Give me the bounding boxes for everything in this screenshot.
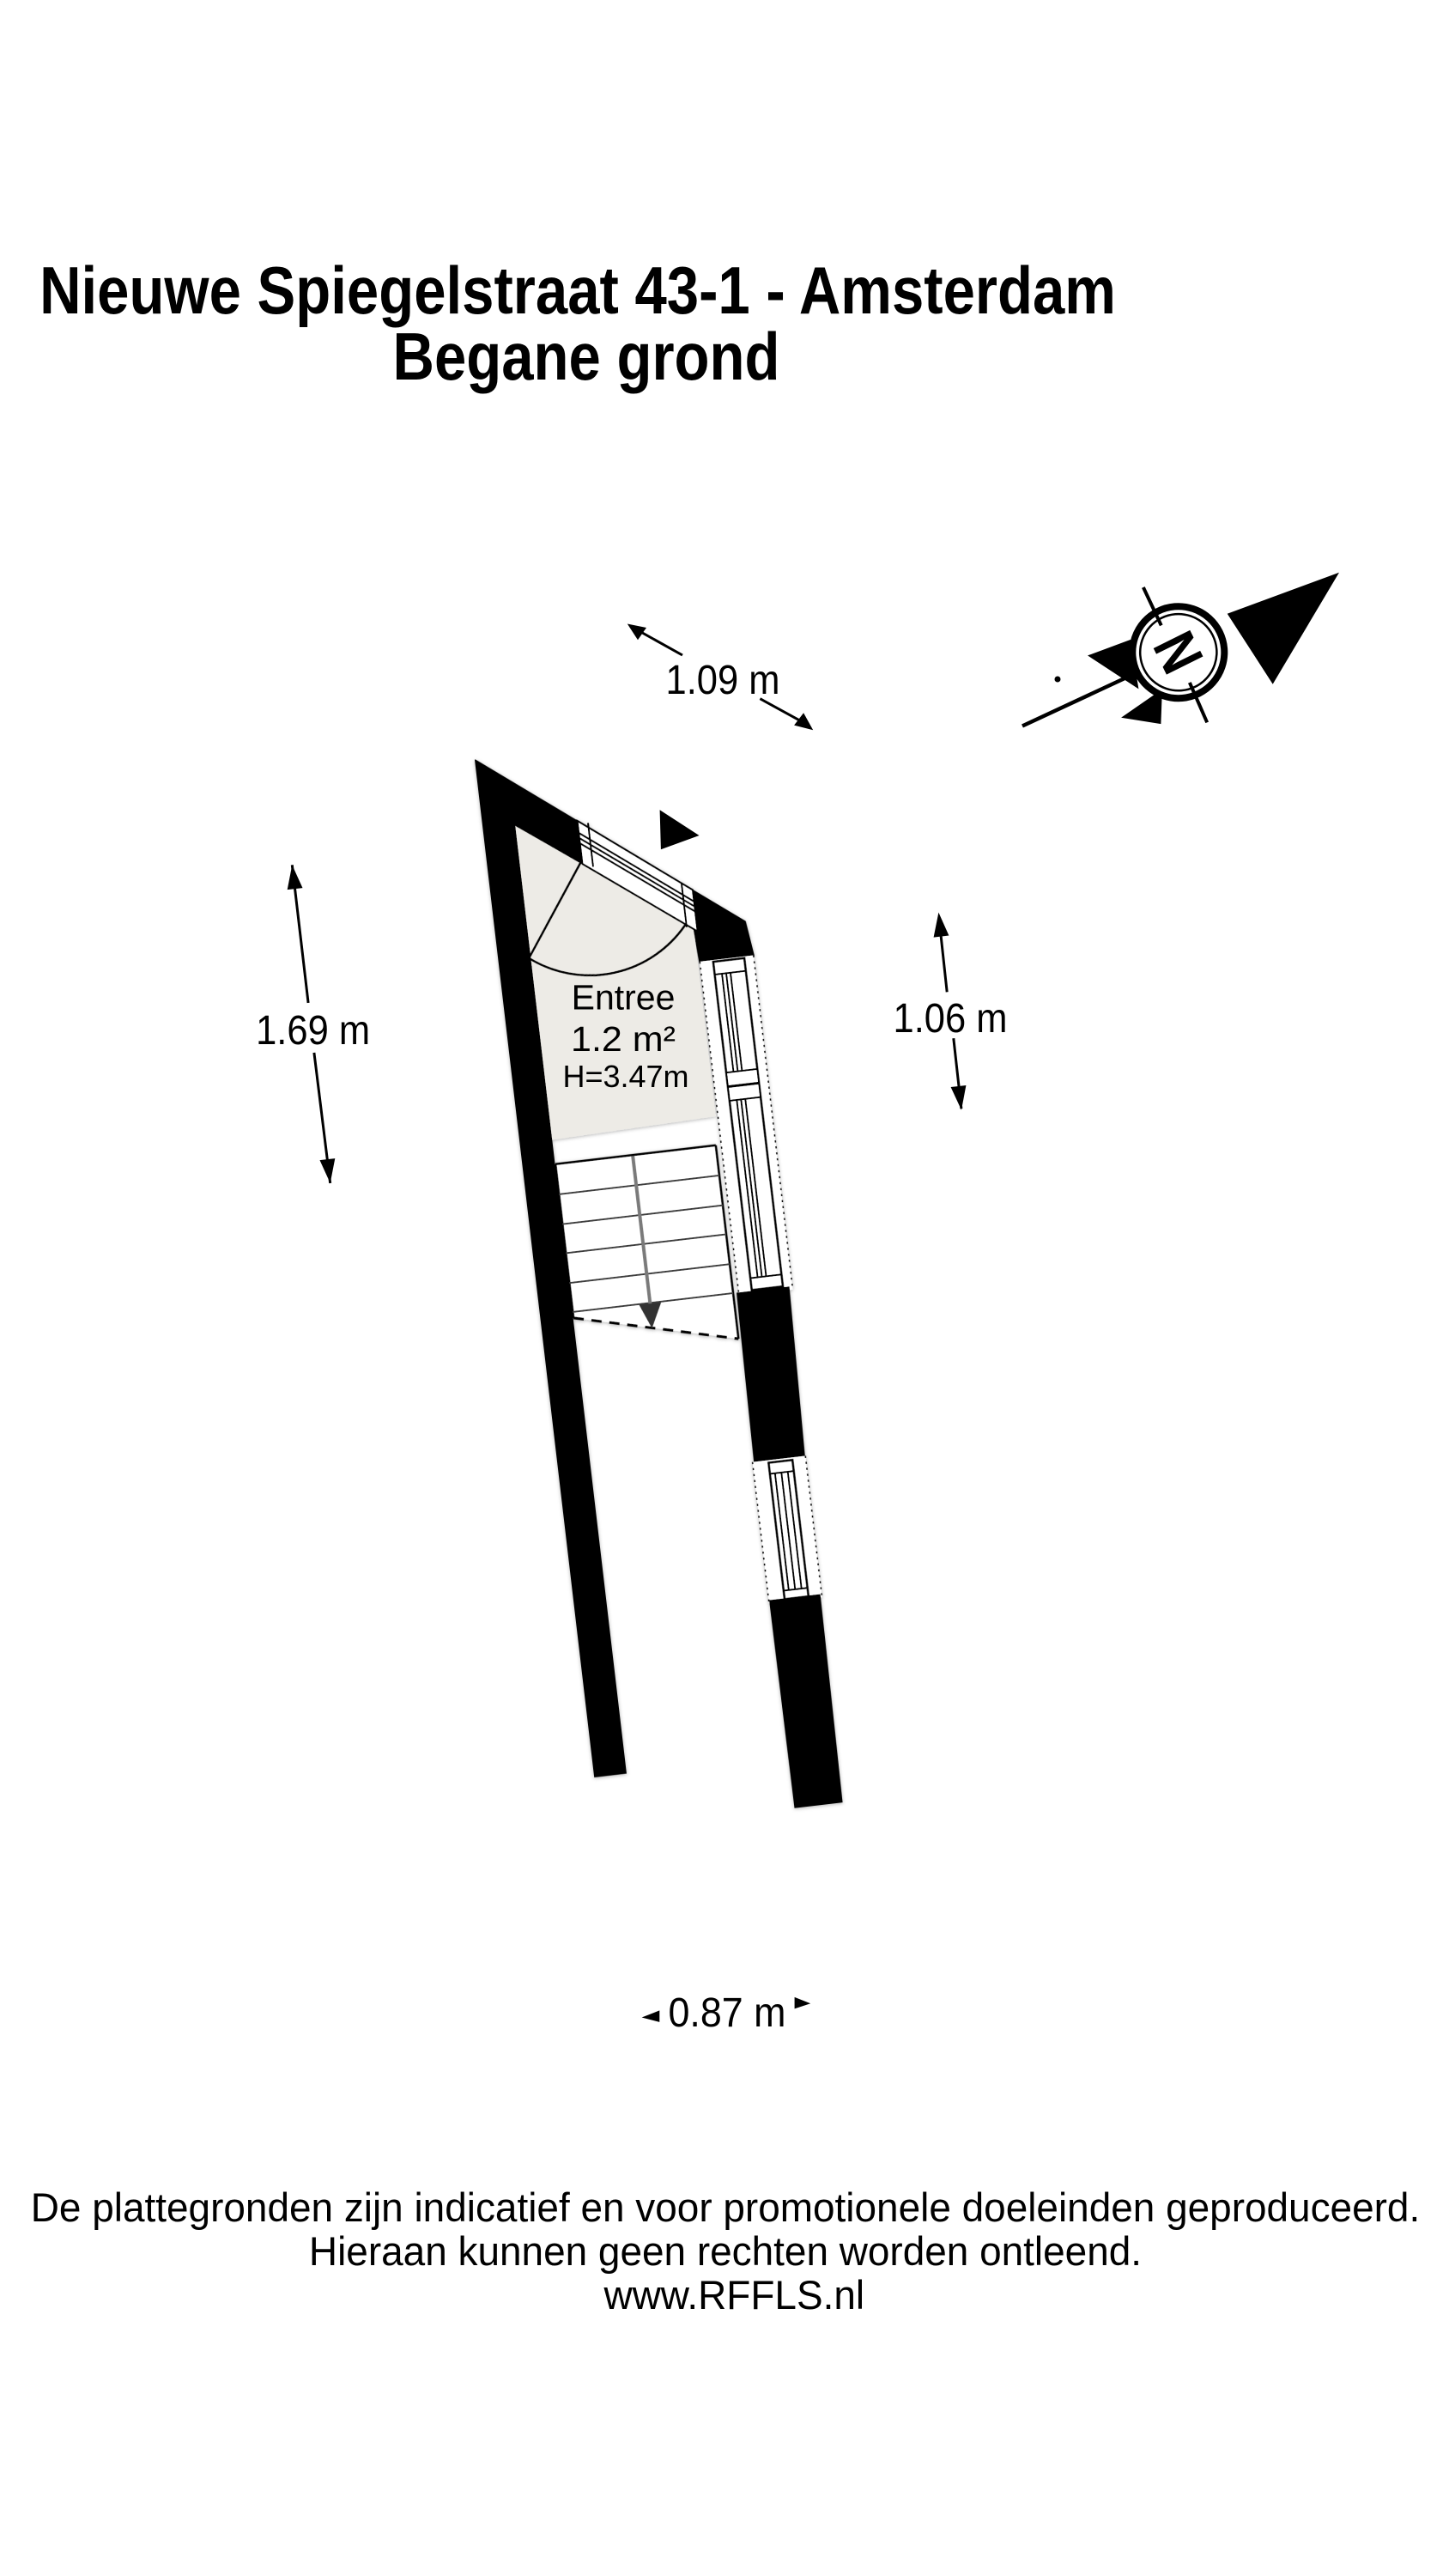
svg-text:0.87 m: 0.87 m bbox=[669, 1990, 786, 2036]
svg-text:H=3.47m: H=3.47m bbox=[562, 1059, 688, 1094]
svg-text:1.09 m: 1.09 m bbox=[666, 658, 780, 703]
svg-text:1.69 m: 1.69 m bbox=[256, 1008, 370, 1054]
svg-text:1.06 m: 1.06 m bbox=[894, 996, 1008, 1042]
svg-text:1.2 m²: 1.2 m² bbox=[571, 1019, 676, 1059]
svg-text:Entree: Entree bbox=[572, 978, 676, 1018]
